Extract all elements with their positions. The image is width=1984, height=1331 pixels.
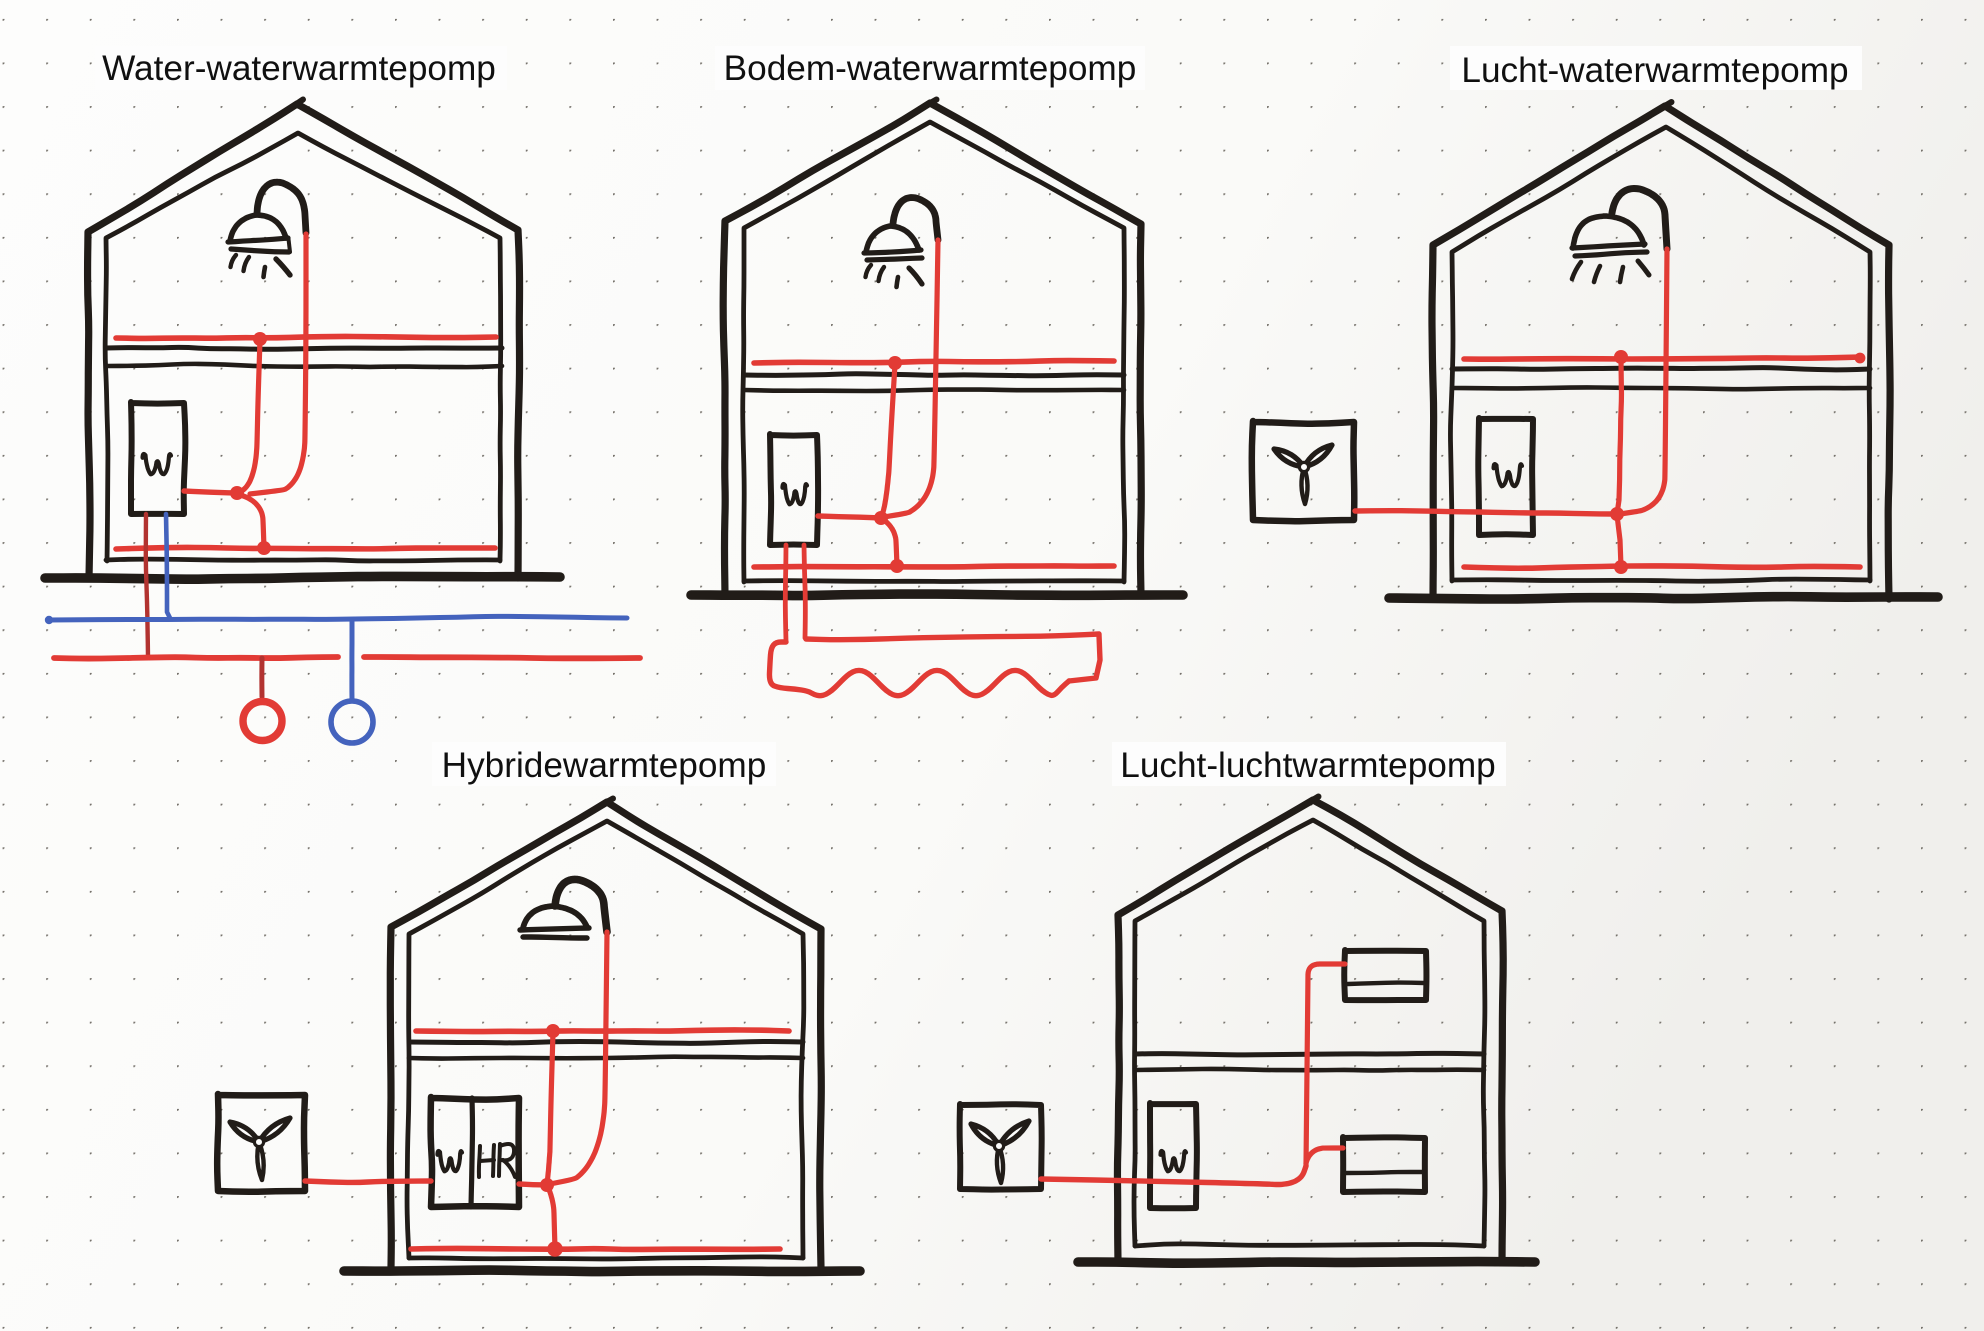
- svg-text:Hybridewarmtepomp: Hybridewarmtepomp: [442, 746, 767, 785]
- svg-text:Bodem-waterwarmtepomp: Bodem-waterwarmtepomp: [724, 49, 1137, 88]
- svg-text:Water-waterwarmtepomp: Water-waterwarmtepomp: [102, 49, 496, 88]
- svg-text:Lucht-waterwarmtepomp: Lucht-waterwarmtepomp: [1461, 51, 1848, 90]
- svg-text:Lucht-luchtwarmtepomp: Lucht-luchtwarmtepomp: [1120, 746, 1496, 785]
